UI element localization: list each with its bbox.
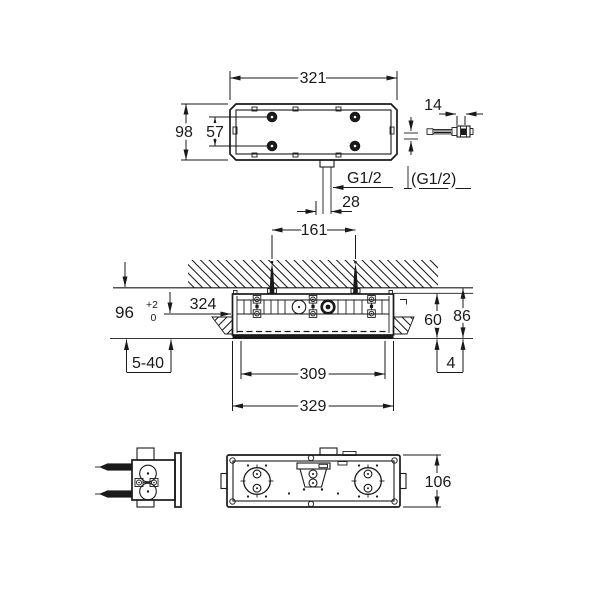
front-view: 106 — [221, 448, 451, 507]
dim-height-outer: 86 — [453, 288, 471, 338]
dim-depth-value: 96 — [115, 303, 134, 322]
top-tab — [320, 448, 337, 455]
dim-screw-spacing: 161 — [272, 222, 356, 259]
finish-wedge-hatch — [394, 317, 415, 334]
dim-outlet-offset: 28 — [297, 194, 360, 215]
dim-hole-spacing-label: 57 — [206, 124, 224, 141]
finish-wedge-hatch — [212, 317, 233, 334]
dim-depth-tol-plus: +2 — [146, 299, 158, 311]
fitting-thread-label: (G1/2) — [404, 166, 471, 189]
side-tab — [400, 474, 406, 489]
mounting-box-section — [233, 291, 407, 340]
dim-depth-tol-minus: 0 — [151, 312, 157, 324]
dim-height-inner-label: 60 — [424, 312, 442, 329]
port-pair-icon — [368, 296, 376, 318]
outlet-thread-label: G1/2 — [333, 170, 393, 188]
fitting-thread-text: (G1/2) — [411, 171, 456, 188]
dim-depth: 96 +2 0 — [115, 262, 158, 324]
side-view — [95, 448, 181, 507]
outlet-thread-text: G1/2 — [347, 170, 382, 187]
fixing-screw-icon — [95, 490, 132, 497]
dim-fitting-length-label: 14 — [424, 97, 442, 114]
port-pair-icon — [309, 296, 317, 318]
top-tab — [137, 448, 154, 460]
top-view: 321 — [175, 70, 418, 215]
center-bracket — [288, 463, 339, 495]
mounting-box-plan — [230, 104, 397, 214]
dim-width-inner-label: 309 — [300, 366, 327, 383]
port-pair-icon — [253, 296, 261, 318]
section-view: 161 — [110, 222, 473, 415]
dim-height-outer-label: 86 — [453, 308, 471, 325]
dim-front-height: 106 — [403, 455, 451, 507]
dim-hole-spacing: 57 — [206, 117, 269, 146]
dim-outlet-offset-label: 28 — [342, 194, 360, 211]
fixing-screw-icon — [95, 463, 132, 470]
dim-height-inner: 60 — [424, 294, 442, 338]
flange-plate — [175, 453, 181, 507]
mid-fittings — [135, 479, 158, 487]
outlet-pipe — [323, 167, 331, 214]
dim-screw-spacing-label: 161 — [301, 222, 328, 239]
fitting-detail: 14 (G1/2) — [404, 97, 483, 189]
dim-finish-range: 5-40 — [127, 340, 172, 373]
outlet-tab — [320, 160, 334, 167]
front-lip — [233, 335, 394, 339]
bottom-tab — [137, 500, 154, 507]
valve-port-icon — [352, 464, 385, 497]
valve-port-icon — [241, 464, 274, 497]
wall-hatch — [188, 260, 438, 288]
dim-finish-range-label: 5-40 — [132, 355, 164, 372]
drawing-svg: 321 — [0, 0, 600, 600]
dim-lip-label: 4 — [447, 355, 456, 372]
dim-width-inner: 309 — [241, 341, 385, 383]
technical-drawing: 321 — [0, 0, 600, 600]
dim-lip: 4 — [437, 339, 463, 372]
dim-front-offset: 324 — [164, 292, 231, 314]
dim-top-width: 321 — [230, 70, 397, 100]
dim-width-outer-label: 329 — [300, 398, 327, 415]
dim-top-width-label: 321 — [300, 70, 327, 87]
mounting-hole-icon — [267, 112, 361, 152]
dim-fitting-length: 14 — [424, 97, 483, 125]
threaded-fitting-icon — [427, 126, 473, 137]
dim-front-offset-label: 324 — [190, 296, 217, 313]
side-port-marks — [404, 117, 418, 155]
side-tab — [221, 474, 227, 489]
dim-front-height-label: 106 — [425, 474, 452, 491]
dim-box-height-label: 98 — [175, 124, 193, 141]
